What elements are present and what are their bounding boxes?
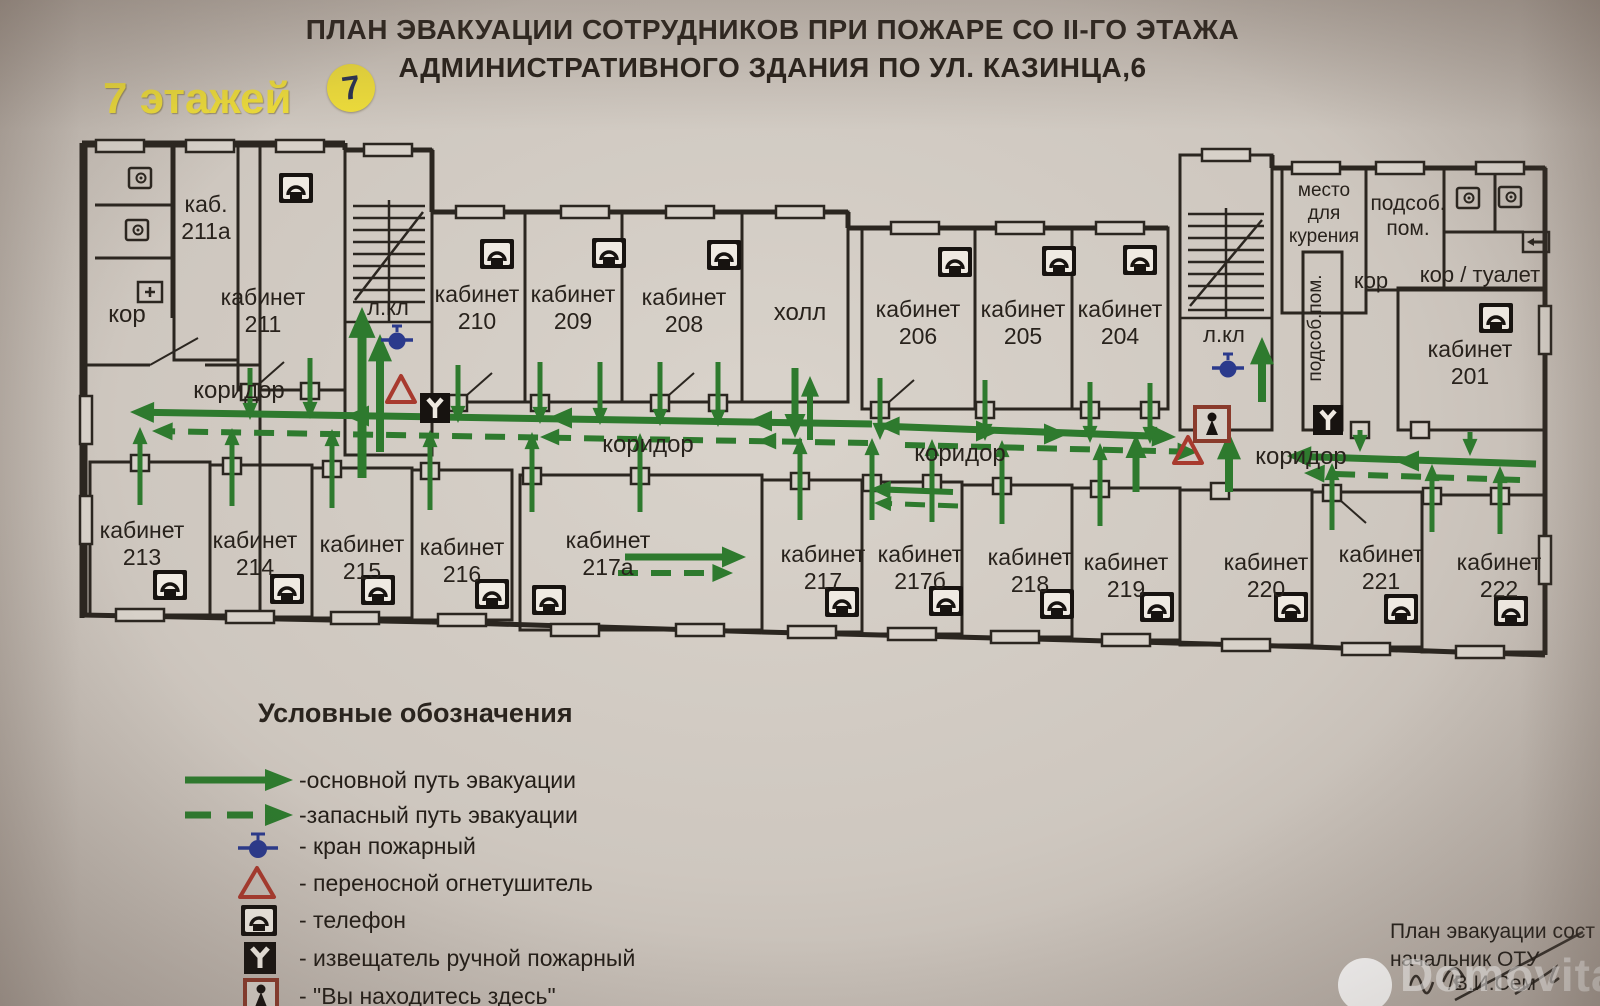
window-mark (996, 222, 1044, 234)
window-mark (1539, 306, 1551, 354)
seven-badge-number: 7 (339, 68, 362, 108)
room-label: подсоб.пом. (1370, 192, 1445, 240)
footer-line1: План эвакуации сост (1390, 920, 1595, 944)
room-label: холл (774, 299, 827, 326)
window-mark (331, 612, 379, 624)
room-label: кабинет210 (435, 281, 520, 334)
phone-icon (486, 598, 498, 605)
phone-icon (1285, 611, 1297, 618)
window-mark (991, 631, 1039, 643)
door-jamb (1411, 422, 1429, 438)
toilet-icon (1468, 197, 1471, 200)
phone-icon (940, 605, 952, 612)
main-route-line (880, 426, 1164, 437)
legend-row-phone: - телефон (183, 902, 406, 938)
main-route-arrow-icon (183, 765, 299, 795)
main-route-line (880, 489, 953, 492)
window-mark (1476, 162, 1524, 174)
evacuation-arrowhead (548, 408, 572, 429)
room-label: кабинет204 (1078, 296, 1163, 349)
page-title-line1: ПЛАН ЭВАКУАЦИИ СОТРУДНИКОВ ПРИ ПОЖАРЕ СО… (0, 14, 1545, 46)
phone-icon (1505, 615, 1517, 622)
fire-hydrant-icon (1220, 361, 1237, 378)
window-mark (456, 206, 504, 218)
room-label: кабинет217 (781, 541, 866, 594)
evacuation-arrowhead (1250, 337, 1274, 364)
phone-icon (372, 594, 384, 601)
legend-row-you-are-here: - "Вы находитесь здесь" (183, 977, 556, 1006)
phone-icon (718, 259, 730, 266)
room-label: кор (108, 301, 145, 328)
you-are-here-icon (183, 977, 299, 1006)
window-mark (80, 496, 92, 544)
phone-icon (164, 589, 176, 596)
window-mark (561, 206, 609, 218)
window-mark (116, 609, 164, 621)
window-mark (1096, 222, 1144, 234)
seven-badge-icon: 7 (327, 64, 375, 112)
room-label: каб.211а (181, 191, 231, 244)
phone-icon (290, 192, 302, 199)
legend-title: Условные обозначения (258, 698, 573, 729)
phone-icon (281, 593, 293, 600)
evacuation-arrowhead (757, 433, 776, 450)
window-mark (1292, 162, 1340, 174)
window-mark (551, 624, 599, 636)
legend-row-alarm: - извещатель ручной пожарный (183, 940, 635, 976)
evacuation-plan-photo: коркаб.211акабинет211л.клкабинет210кабин… (0, 0, 1600, 1006)
phone-icon (1490, 322, 1502, 329)
window-mark (888, 628, 936, 640)
phone-icon (1134, 264, 1146, 271)
room-label: кабинет201 (1428, 336, 1513, 389)
room-label: л.кл (1203, 322, 1245, 347)
phone-icon (543, 604, 555, 611)
evacuation-arrowhead (976, 421, 1000, 442)
legend-row-hydrant: - кран пожарный (183, 830, 476, 862)
legend-label: - телефон (299, 907, 406, 934)
room-label-vertical: подсоб.пом. (1305, 274, 1326, 381)
reserve-route-arrow-icon (183, 800, 299, 830)
reserve-route-line (883, 503, 958, 506)
phone-icon (836, 606, 848, 613)
evacuation-arrowhead (130, 402, 154, 423)
room-label: кор / туалет (1420, 262, 1540, 287)
legend-label: - извещатель ручной пожарный (299, 945, 635, 972)
room-label: местодлякурения (1289, 180, 1359, 247)
window-mark (276, 140, 324, 152)
room-label: коридор (1255, 443, 1347, 470)
evacuation-arrowhead (874, 496, 891, 511)
evacuation-arrowhead (345, 406, 369, 427)
evacuation-arrowhead (133, 427, 148, 444)
room-label: коридор (914, 440, 1006, 467)
window-mark (1102, 634, 1150, 646)
phone-icon (1395, 613, 1407, 620)
window-mark (1376, 162, 1424, 174)
manual-alarm-icon (183, 940, 299, 976)
window-mark (1202, 149, 1250, 161)
floors-label: 7 этажей (103, 74, 292, 124)
fire-hydrant-icon (389, 333, 406, 350)
room-label: кабинет211 (221, 284, 306, 337)
window-mark (96, 140, 144, 152)
room-label: кабинет213 (100, 517, 185, 570)
room-label: кор (1354, 268, 1388, 293)
evacuation-arrowhead (1425, 464, 1440, 481)
window-mark (676, 624, 724, 636)
room-label: кабинет208 (642, 284, 727, 337)
evacuation-arrowhead (748, 411, 772, 432)
evacuation-arrowhead (722, 547, 746, 568)
evacuation-arrowhead (1395, 451, 1419, 472)
room-label: кабинет205 (981, 296, 1066, 349)
evacuation-arrowhead (540, 429, 559, 446)
fire-hydrant-icon (183, 830, 299, 862)
legend-row-reserve-route: -запасный путь эвакуации (183, 800, 578, 830)
legend-label: -основной путь эвакуации (299, 767, 576, 794)
reserve-route-line (1314, 473, 1520, 480)
evacuation-arrowhead (1463, 439, 1478, 456)
window-mark (364, 144, 412, 156)
phone-icon (183, 902, 299, 938)
window-mark (788, 626, 836, 638)
window-mark (226, 611, 274, 623)
legend-row-extinguisher: - переносной огнетушитель (183, 865, 593, 901)
room-label: кабинет222 (1457, 549, 1542, 602)
watermark-dot-icon (1338, 958, 1392, 1006)
room-label: коридор (193, 377, 285, 404)
toilet-icon (1510, 196, 1513, 199)
toilet-icon (137, 229, 140, 232)
legend-label: - "Вы находитесь здесь" (299, 983, 556, 1006)
evacuation-arrowhead (152, 422, 173, 440)
legend-row-main-route: -основной путь эвакуации (183, 765, 576, 795)
room-label: коридор (602, 431, 694, 458)
phone-icon (1053, 265, 1065, 272)
window-mark (891, 222, 939, 234)
window-mark (1456, 646, 1504, 658)
exit-arrow-icon (1527, 238, 1534, 246)
phone-icon (1151, 611, 1163, 618)
legend-label: - кран пожарный (299, 833, 476, 860)
extinguisher-icon (387, 376, 415, 402)
evacuation-arrowhead (368, 334, 392, 361)
evacuation-arrowhead (1044, 424, 1068, 445)
phone-icon (1051, 608, 1063, 615)
room-label: кабинет214 (213, 527, 298, 580)
legend-label: -запасный путь эвакуации (299, 802, 578, 829)
room-label: кабинет206 (876, 296, 961, 349)
window-mark (438, 614, 486, 626)
watermark-text: Domovita (1400, 948, 1600, 1002)
evacuation-arrowhead (1353, 435, 1368, 452)
window-mark (186, 140, 234, 152)
extinguisher-icon (183, 865, 299, 901)
legend-label: - переносной огнетушитель (299, 870, 593, 897)
toilet-icon (140, 177, 143, 180)
window-mark (666, 206, 714, 218)
window-mark (1222, 639, 1270, 651)
room-label: кабинет209 (531, 281, 616, 334)
phone-icon (603, 257, 615, 264)
phone-icon (491, 258, 503, 265)
evacuation-arrowhead (801, 376, 819, 397)
evacuation-arrowhead (1493, 466, 1508, 483)
room-label: кабинет221 (1339, 541, 1424, 594)
room-label: л.кл (367, 295, 409, 320)
window-mark (1342, 643, 1390, 655)
room-wall (174, 146, 238, 360)
phone-icon (949, 266, 961, 273)
window-mark (80, 396, 92, 444)
window-mark (776, 206, 824, 218)
